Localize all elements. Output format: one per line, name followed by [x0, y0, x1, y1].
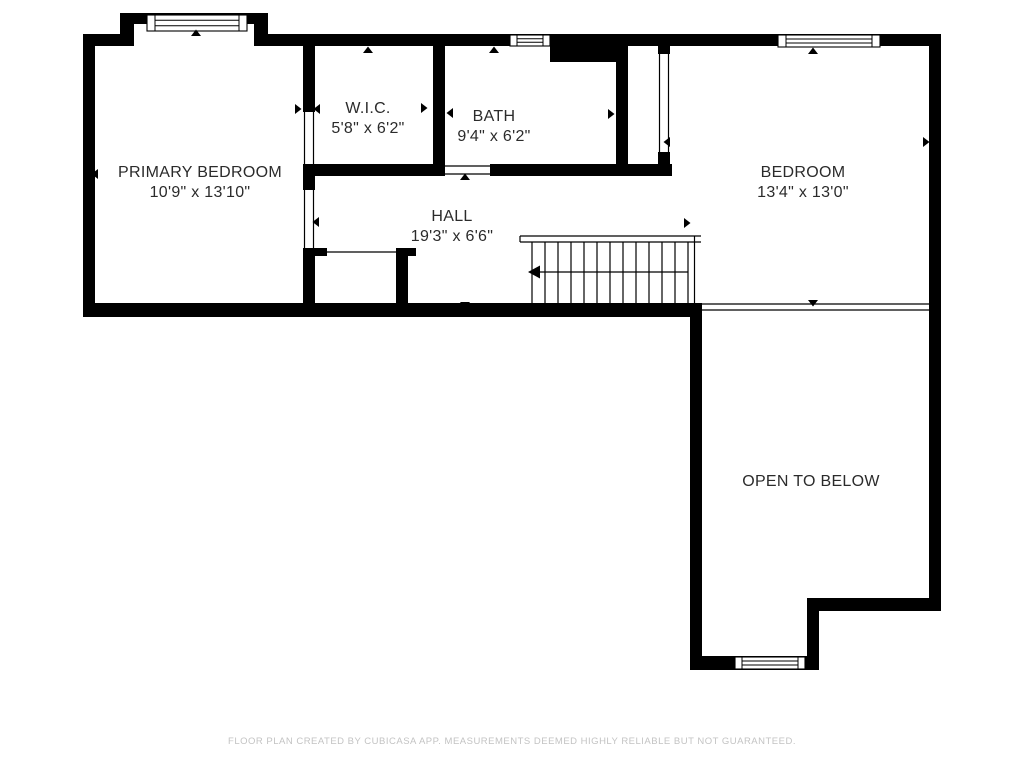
room-label-wic: W.I.C. 5'8" x 6'2": [331, 99, 404, 139]
window-icon: [735, 657, 805, 669]
stair-direction-arrow-icon: [528, 266, 540, 279]
room-label-primary-bedroom: PRIMARY BEDROOM 10'9" x 13'10": [118, 163, 282, 203]
room-name: HALL: [411, 207, 493, 227]
room-label-hall: HALL 19'3" x 6'6": [411, 207, 493, 247]
room-name: BATH: [457, 107, 530, 127]
room-name: PRIMARY BEDROOM: [118, 163, 282, 183]
room-dims: 19'3" x 6'6": [411, 227, 493, 247]
room-label-bedroom: BEDROOM 13'4" x 13'0": [757, 163, 849, 203]
room-label-open-to-below: OPEN TO BELOW: [742, 472, 880, 492]
room-name: W.I.C.: [331, 99, 404, 119]
room-dims: 10'9" x 13'10": [118, 183, 282, 203]
window-icon: [510, 35, 550, 46]
floor-plan-canvas: PRIMARY BEDROOM 10'9" x 13'10" W.I.C. 5'…: [0, 0, 1024, 768]
staircase: [520, 236, 701, 303]
room-dims: 9'4" x 6'2": [457, 127, 530, 147]
room-label-bath: BATH 9'4" x 6'2": [457, 107, 530, 147]
window-icon: [147, 15, 247, 31]
railing: [702, 304, 929, 310]
room-dims: 13'4" x 13'0": [757, 183, 849, 203]
room-name: BEDROOM: [757, 163, 849, 183]
room-name: OPEN TO BELOW: [742, 472, 880, 492]
room-dims: 5'8" x 6'2": [331, 119, 404, 139]
window-icon: [778, 35, 880, 47]
footer-disclaimer: FLOOR PLAN CREATED BY CUBICASA APP. MEAS…: [0, 736, 1024, 747]
